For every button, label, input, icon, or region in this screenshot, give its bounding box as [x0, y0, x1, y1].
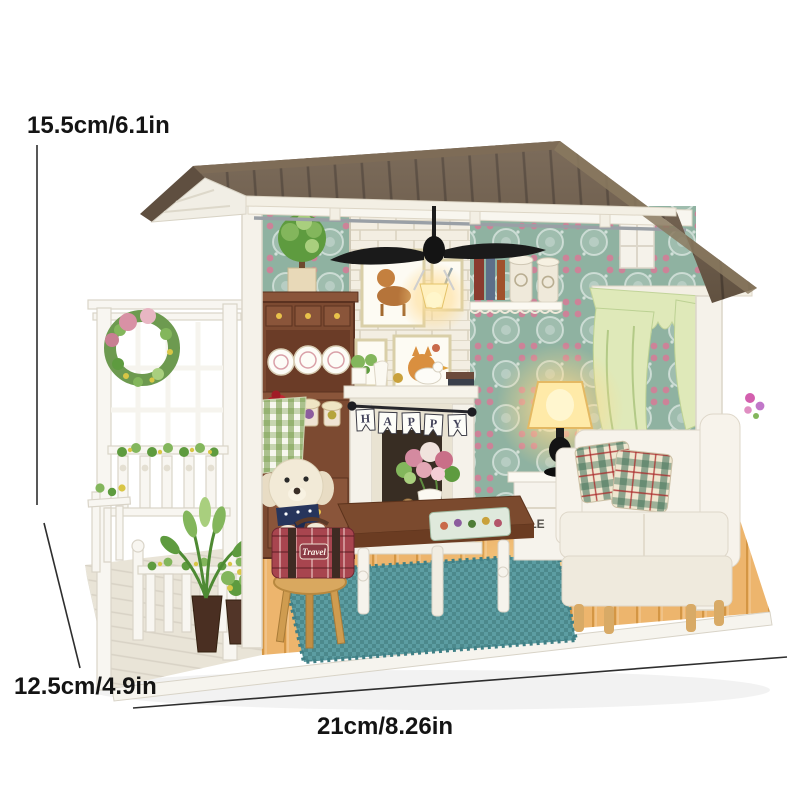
right-wall-shelf — [470, 255, 562, 313]
canister — [538, 262, 558, 302]
banner-letter: P — [429, 416, 437, 430]
sofa-leg — [714, 600, 724, 626]
suitcase-strap — [332, 528, 340, 578]
hutch-cornice — [258, 292, 358, 302]
suitcase-label: Travel — [302, 547, 326, 557]
book — [497, 260, 505, 300]
banner-letter: Y — [453, 417, 462, 431]
sofa-leg — [574, 604, 584, 632]
mantel-plant — [351, 355, 365, 369]
banner-letter: P — [407, 415, 415, 429]
book — [486, 256, 495, 300]
pink-flower-cluster — [744, 393, 764, 419]
product-photo-dollhouse: H A P P Y FLE — [0, 0, 800, 800]
wreath-rose — [105, 333, 119, 347]
mantel-shelf — [344, 386, 478, 398]
dessert-tray — [429, 507, 511, 541]
table-leg — [432, 546, 443, 616]
fan-motor — [423, 236, 445, 264]
trellis-garland — [117, 443, 219, 457]
depth-dimension-line — [44, 523, 80, 668]
arbor-beam — [88, 300, 246, 309]
plaid-pillow — [611, 449, 673, 513]
width-label: 21cm/8.26in — [317, 713, 453, 740]
mantel-books — [446, 372, 474, 379]
book — [474, 258, 484, 300]
fan-bulb — [426, 292, 442, 308]
hutch-drawers — [266, 306, 350, 326]
sofa-base — [562, 556, 732, 606]
banner-letter: H — [360, 411, 371, 426]
height-label: 15.5cm/6.1in — [27, 112, 170, 139]
suitcase-strap — [288, 528, 296, 578]
depth-label: 12.5cm/4.9in — [14, 673, 157, 700]
plate-row — [268, 346, 350, 375]
gold-trinket — [393, 373, 403, 383]
sofa — [556, 414, 740, 634]
wreath-rose — [119, 313, 137, 331]
shelf-ledge — [470, 302, 562, 310]
banner-letter: A — [383, 414, 392, 428]
arbor-bottom-rail — [106, 508, 230, 516]
canister — [510, 260, 532, 302]
wreath-rose — [140, 308, 156, 324]
cat-art-bird — [432, 344, 440, 352]
mantel-vase — [374, 361, 388, 386]
travel-suitcase: Travel — [272, 519, 354, 578]
dog-nose — [294, 488, 301, 495]
left-corner-post — [242, 198, 262, 648]
fence-post — [133, 548, 143, 640]
dollhouse-illustration: H A P P Y FLE — [0, 0, 800, 800]
stool-leg — [306, 590, 313, 648]
sofa-leg — [604, 606, 614, 634]
sofa-leg — [686, 604, 696, 632]
